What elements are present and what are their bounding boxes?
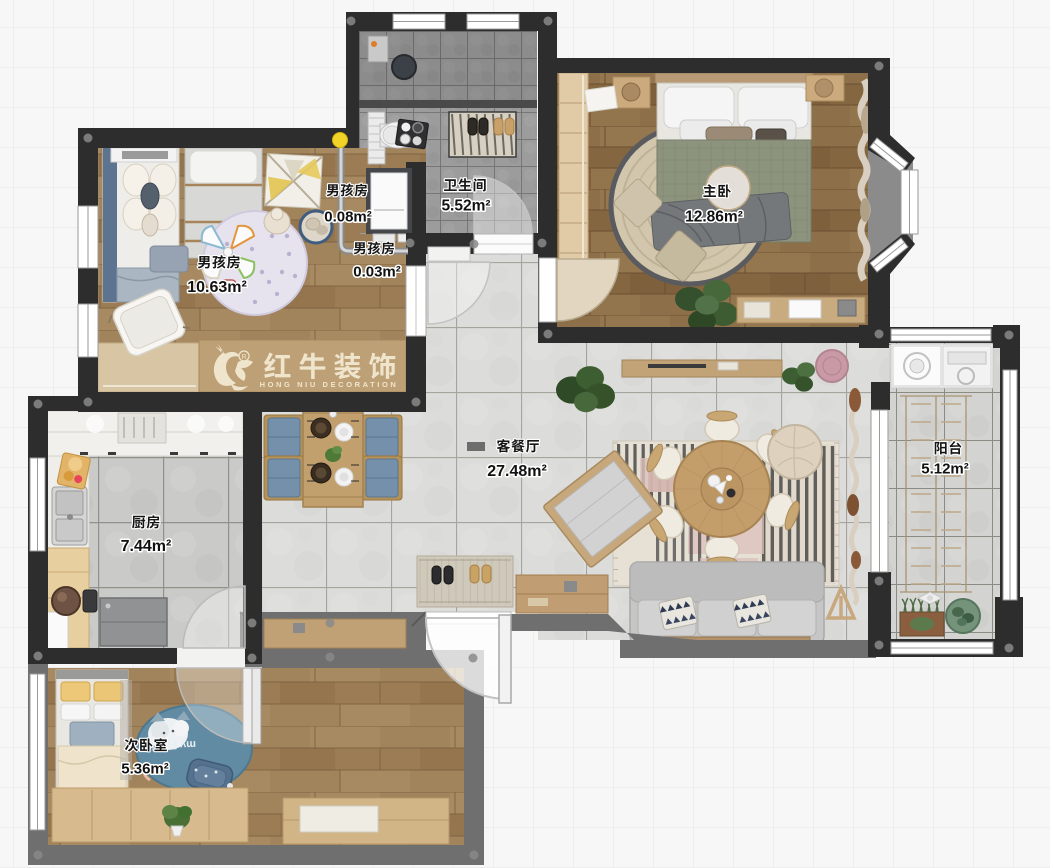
svg-text:5.36m²: 5.36m²	[121, 760, 169, 777]
svg-text:27.48m²: 27.48m²	[487, 463, 547, 480]
svg-text:5.12m²: 5.12m²	[921, 460, 969, 477]
svg-text:0.08m²: 0.08m²	[324, 208, 372, 225]
svg-text:0.03m²: 0.03m²	[353, 263, 401, 280]
svg-text:HONG NIU DECORATION: HONG NIU DECORATION	[260, 380, 399, 389]
svg-text:10.63m²: 10.63m²	[187, 279, 247, 296]
svg-text:5.52m²: 5.52m²	[441, 198, 490, 215]
svg-text:7.44m²: 7.44m²	[121, 538, 172, 555]
svg-text:12.86m²: 12.86m²	[685, 209, 743, 226]
svg-text:R: R	[241, 354, 246, 361]
